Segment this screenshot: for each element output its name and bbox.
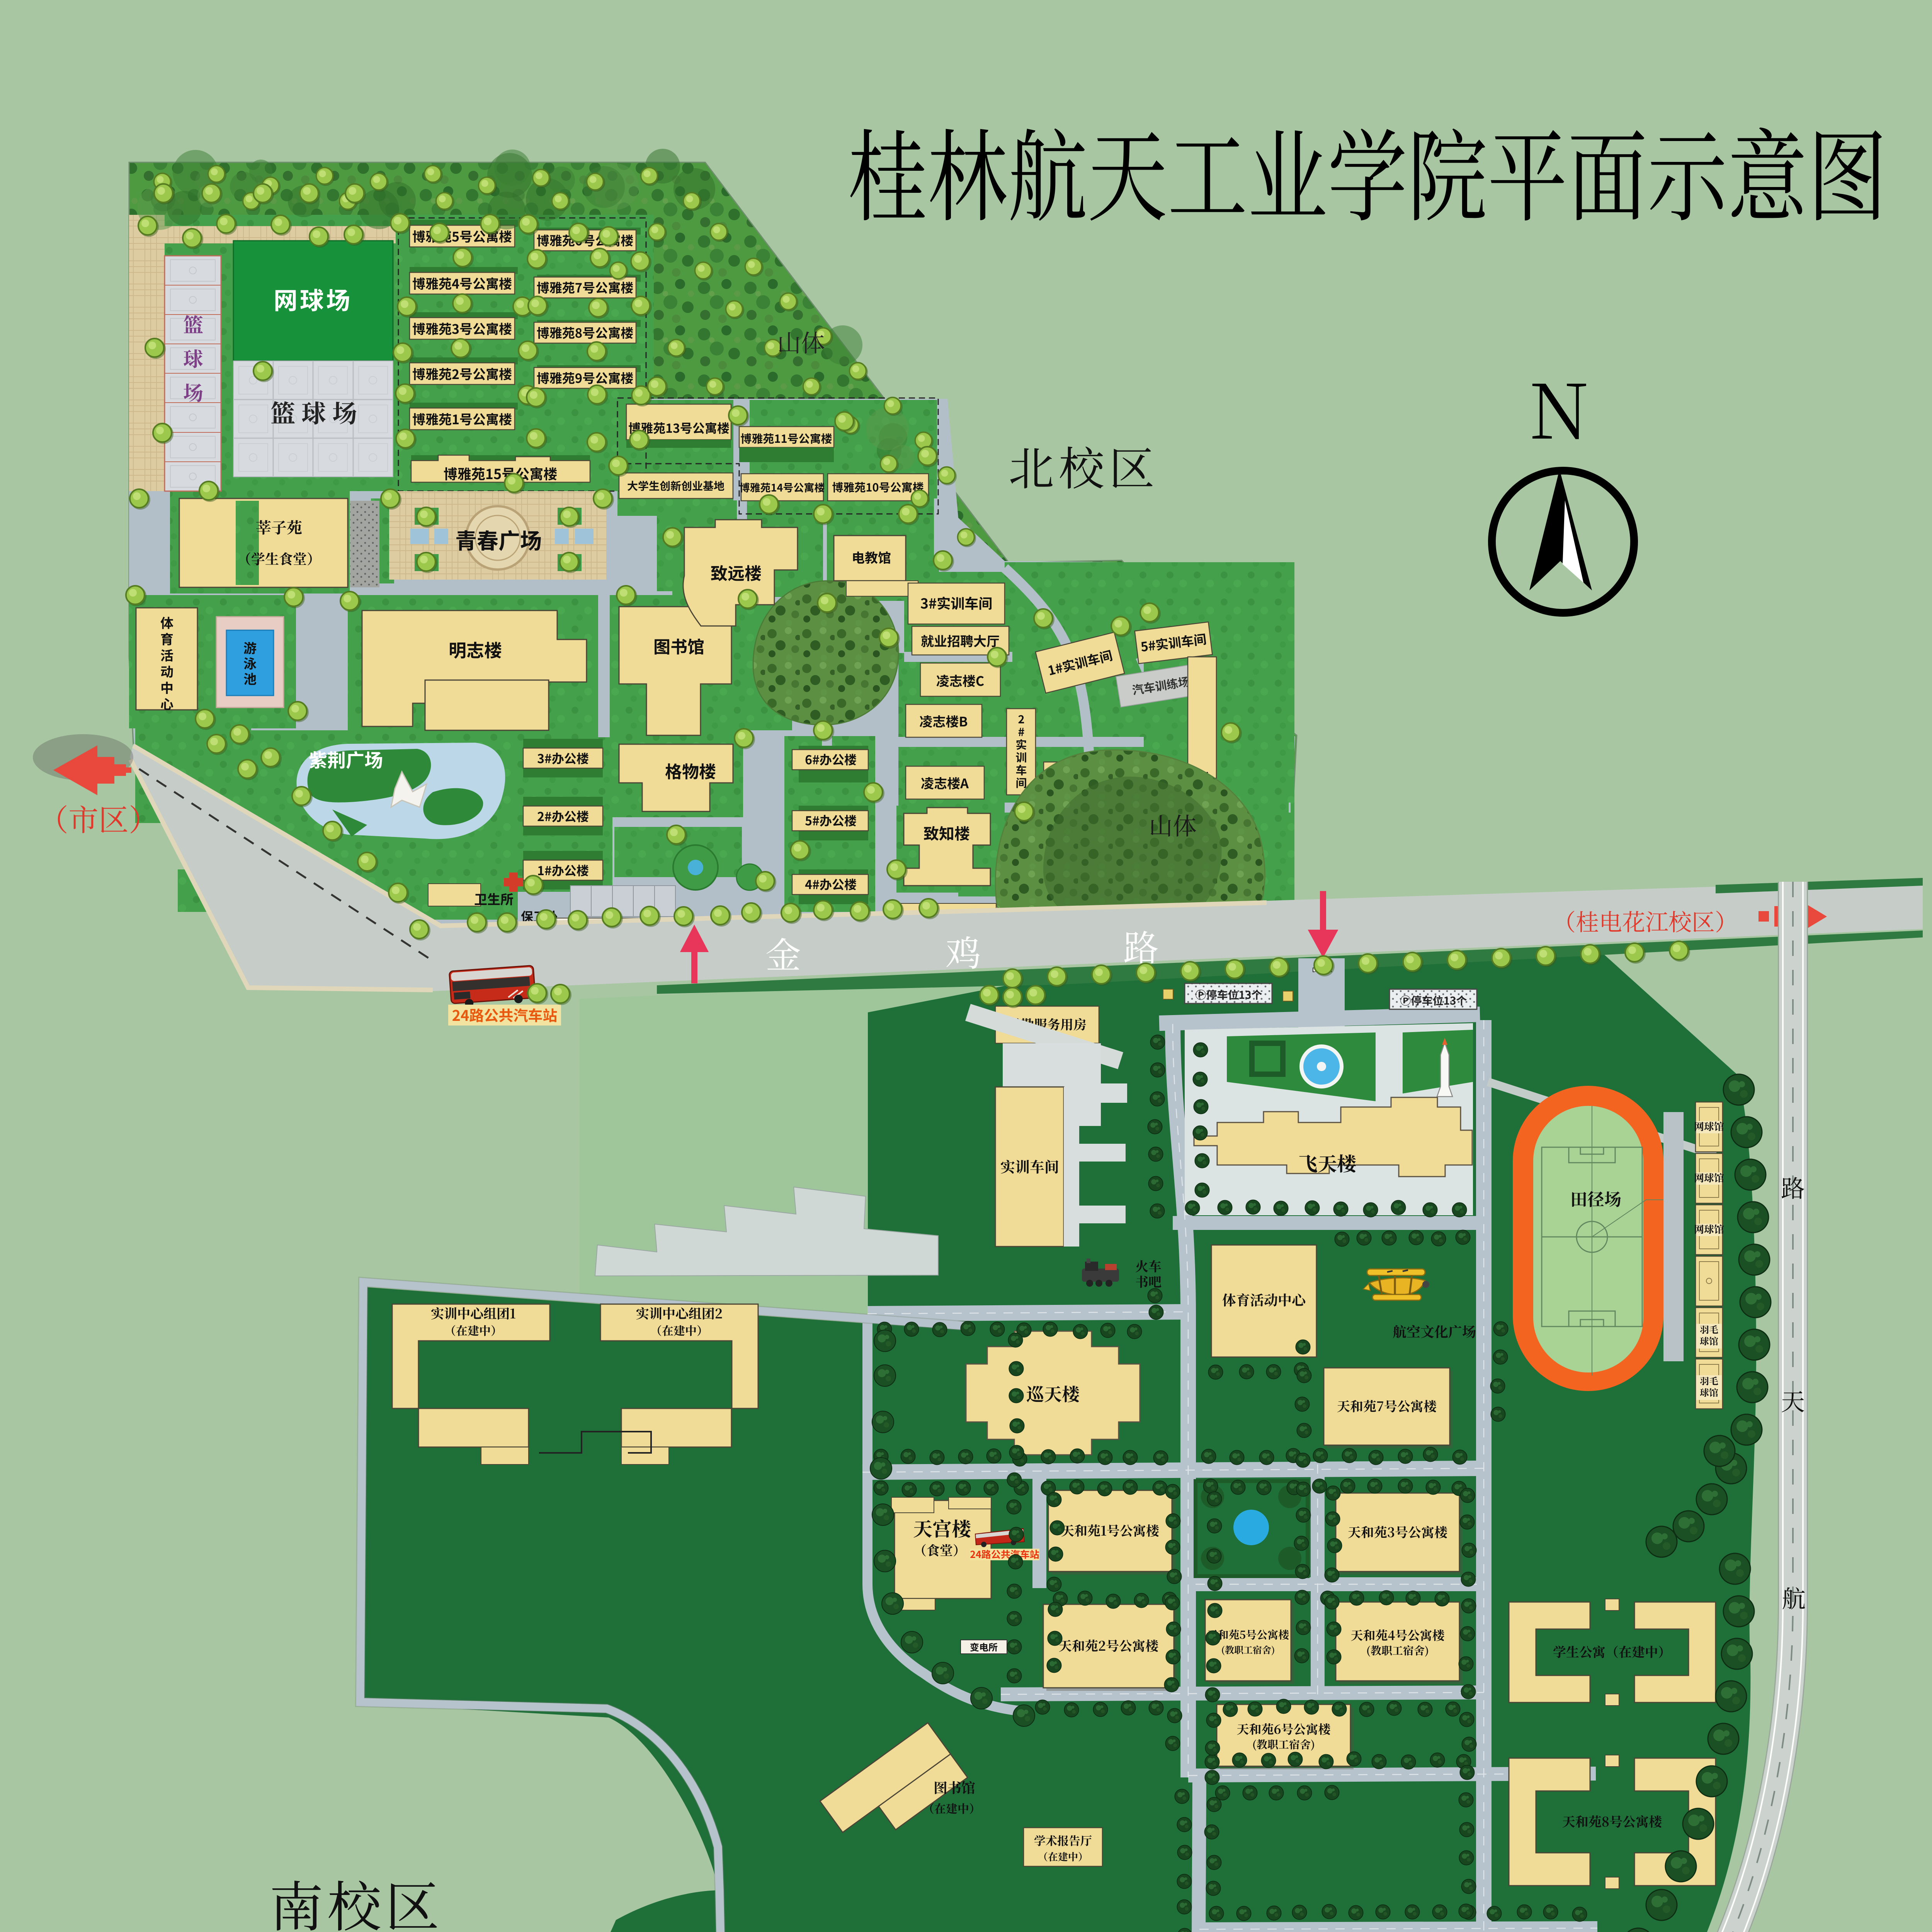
svg-text:路: 路 [1123,920,1159,971]
svg-text:（在建中）: （在建中） [1038,1849,1088,1864]
svg-text:间: 间 [1015,774,1027,791]
svg-text:网球馆: 网球馆 [1694,1170,1724,1185]
svg-text:（在建中）: （在建中） [923,1799,981,1816]
svg-text:天宫楼: 天宫楼 [913,1514,973,1542]
svg-text:天和苑1号公寓楼: 天和苑1号公寓楼 [1061,1520,1160,1539]
svg-text:实训中心组团2: 实训中心组团2 [636,1303,723,1322]
svg-text:飞天楼: 飞天楼 [1298,1149,1358,1177]
svg-text:致知楼: 致知楼 [923,821,970,844]
svg-text:金: 金 [765,927,801,978]
svg-text:学术报告厅: 学术报告厅 [1034,1832,1092,1849]
svg-text:天和苑2号公寓楼: 天和苑2号公寓楼 [1059,1636,1160,1655]
svg-text:(教职工宿舍): (教职工宿舍) [1366,1643,1429,1658]
svg-text:Ⓟ停车位13个: Ⓟ停车位13个 [1400,993,1467,1008]
svg-text:天和苑6号公寓楼: 天和苑6号公寓楼 [1236,1720,1332,1738]
svg-text:路: 路 [1781,1170,1805,1204]
svg-text:球馆: 球馆 [1700,1385,1718,1399]
svg-text:博雅苑15号公寓楼: 博雅苑15号公寓楼 [444,463,557,483]
svg-text:（在建中）: （在建中） [650,1321,708,1338]
svg-text:鸡: 鸡 [946,925,981,976]
svg-text:南校区: 南校区 [269,1864,443,1932]
svg-text:博雅苑10号公寓楼: 博雅苑10号公寓楼 [832,479,923,495]
svg-text:博雅苑7号公寓楼: 博雅苑7号公寓楼 [537,278,633,296]
svg-text:心: 心 [160,694,173,713]
svg-text:博雅苑2号公寓楼: 博雅苑2号公寓楼 [412,364,512,383]
svg-text:天和苑3号公寓楼: 天和苑3号公寓楼 [1348,1522,1449,1541]
svg-text:球: 球 [183,343,203,372]
svg-text:巡天楼: 巡天楼 [1026,1381,1081,1406]
svg-text:青春广场: 青春广场 [455,524,542,555]
svg-text:北校区: 北校区 [1009,432,1159,498]
svg-text:N: N [1529,352,1589,460]
svg-text:5#办公楼: 5#办公楼 [805,811,857,829]
svg-text:网球馆: 网球馆 [1694,1119,1724,1133]
svg-text:航: 航 [1782,1580,1806,1614]
svg-text:(教职工宿舍): (教职工宿舍) [1221,1643,1275,1656]
svg-text:博雅苑8号公寓楼: 博雅苑8号公寓楼 [537,323,633,342]
svg-text:航空文化广场: 航空文化广场 [1393,1321,1476,1341]
svg-text:博雅苑9号公寓楼: 博雅苑9号公寓楼 [537,368,633,387]
svg-text:桂林航天工业学院平面示意图: 桂林航天工业学院平面示意图 [848,98,1888,241]
svg-text:天: 天 [1781,1383,1805,1417]
svg-text:网球场: 网球场 [274,281,352,316]
svg-text:天和苑4号公寓楼: 天和苑4号公寓楼 [1351,1626,1446,1644]
svg-text:格物楼: 格物楼 [665,758,716,783]
svg-text:山体: 山体 [777,324,825,359]
svg-text:电教馆: 电教馆 [852,548,891,566]
svg-text:24路公共汽车站: 24路公共汽车站 [970,1547,1039,1561]
svg-text:池: 池 [243,669,257,688]
svg-text:凌志楼B: 凌志楼B [919,711,968,730]
svg-text:篮: 篮 [183,309,203,338]
svg-text:博雅苑3号公寓楼: 博雅苑3号公寓楼 [412,319,512,338]
svg-text:(教职工宿舍): (教职工宿舍) [1252,1736,1315,1752]
svg-text:博雅苑1号公寓楼: 博雅苑1号公寓楼 [412,409,512,428]
svg-text:3#实训车间: 3#实训车间 [920,593,992,613]
svg-text:（桂电花江校区）: （桂电花江校区） [1553,904,1738,937]
svg-text:6#办公楼: 6#办公楼 [805,750,857,768]
svg-text:天和苑8号公寓楼: 天和苑8号公寓楼 [1562,1811,1663,1830]
svg-text:书吧: 书吧 [1135,1272,1162,1291]
svg-text:田径场: 田径场 [1570,1186,1621,1211]
svg-text:山体: 山体 [1149,807,1197,842]
svg-text:博雅苑14号公寓楼: 博雅苑14号公寓楼 [740,480,825,495]
svg-text:篮 球 场: 篮 球 场 [270,394,357,430]
svg-text:24路公共汽车站: 24路公共汽车站 [452,1004,558,1025]
svg-text:明志楼: 明志楼 [449,637,502,662]
svg-text:就业招聘大厅: 就业招聘大厅 [921,631,1000,650]
svg-text:实训车间: 实训车间 [1000,1155,1059,1177]
svg-text:（市区）: （市区） [38,796,159,840]
svg-text:场: 场 [183,377,203,406]
svg-text:网球馆: 网球馆 [1694,1222,1724,1236]
svg-text:凌志楼A: 凌志楼A [921,773,969,792]
svg-text:学生公寓（在建中）: 学生公寓（在建中） [1553,1642,1671,1661]
svg-text:实训中心组团1: 实训中心组团1 [431,1303,516,1322]
svg-text:体育活动中心: 体育活动中心 [1222,1290,1308,1310]
svg-text:变电所: 变电所 [970,1640,998,1653]
svg-text:（在建中）: （在建中） [444,1321,502,1338]
svg-text:1#办公楼: 1#办公楼 [537,861,589,879]
svg-text:博雅苑11号公寓楼: 博雅苑11号公寓楼 [740,430,832,446]
svg-text:卫生所: 卫生所 [474,889,514,908]
svg-text:2#办公楼: 2#办公楼 [537,807,589,825]
svg-text:3#办公楼: 3#办公楼 [537,749,589,767]
svg-text:（学生食堂）: （学生食堂） [237,549,321,568]
svg-text:Ⓟ停车位13个: Ⓟ停车位13个 [1195,987,1262,1002]
svg-text:（食堂）: （食堂） [913,1540,966,1559]
svg-text:大学生创新创业基地: 大学生创新创业基地 [627,478,724,493]
svg-text:4#办公楼: 4#办公楼 [805,875,857,893]
svg-text:莘子苑: 莘子苑 [256,516,302,538]
svg-text:图书馆: 图书馆 [934,1777,975,1797]
svg-text:紫荆广场: 紫荆广场 [309,745,383,772]
svg-text:致远楼: 致远楼 [711,560,762,585]
svg-text:凌志楼C: 凌志楼C [936,671,984,690]
svg-text:图书馆: 图书馆 [653,633,704,658]
svg-text:球馆: 球馆 [1700,1334,1718,1347]
svg-text:博雅苑4号公寓楼: 博雅苑4号公寓楼 [412,274,512,293]
svg-text:天和苑7号公寓楼: 天和苑7号公寓楼 [1337,1396,1438,1415]
